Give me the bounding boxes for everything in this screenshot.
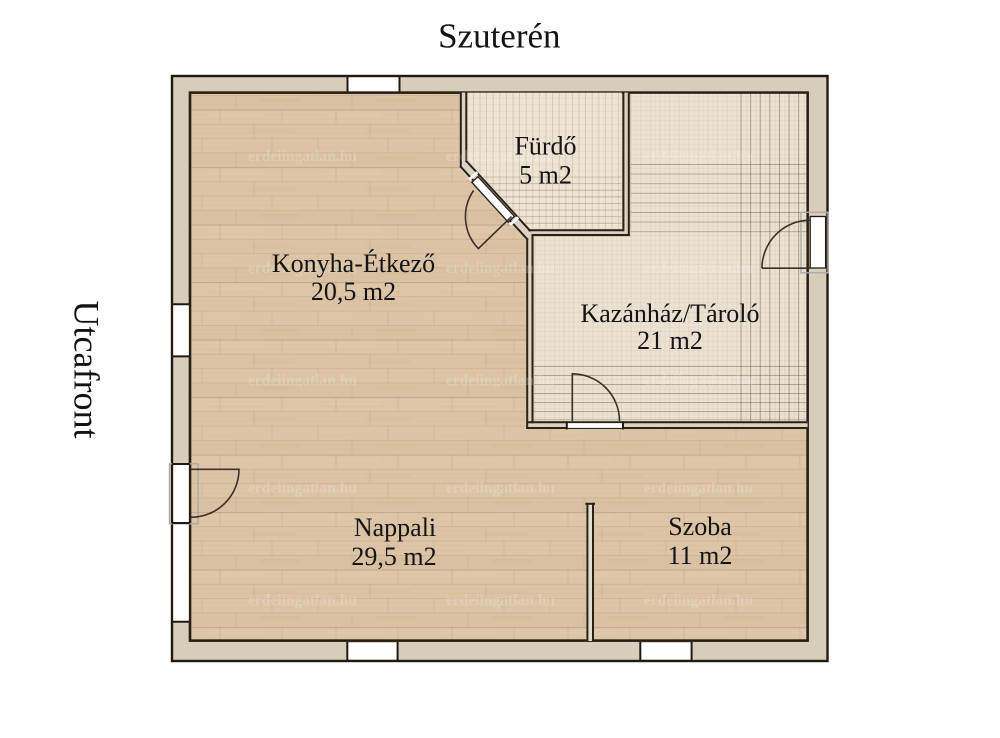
- svg-text:Utcafront: Utcafront: [67, 301, 107, 439]
- svg-text:erdeiingatlan.hu: erdeiingatlan.hu: [842, 592, 951, 609]
- svg-text:21 m2: 21 m2: [637, 326, 703, 355]
- svg-text:erdeiingatlan.hu: erdeiingatlan.hu: [842, 372, 951, 389]
- svg-text:Szoba: Szoba: [668, 512, 732, 541]
- svg-text:erdeiingatlan.hu: erdeiingatlan.hu: [446, 260, 555, 277]
- svg-text:erdeiingatlan.hu: erdeiingatlan.hu: [644, 372, 753, 389]
- svg-text:erdeiingatlan.hu: erdeiingatlan.hu: [842, 260, 951, 277]
- svg-text:Konyha-Étkező: Konyha-Étkező: [272, 249, 435, 278]
- svg-text:erdeiingatlan.hu: erdeiingatlan.hu: [248, 148, 357, 165]
- svg-text:erdeiingatlan.hu: erdeiingatlan.hu: [446, 480, 555, 497]
- svg-text:erdeiingatlan.hu: erdeiingatlan.hu: [842, 148, 951, 165]
- svg-text:Kazánház/Tároló: Kazánház/Tároló: [580, 299, 759, 328]
- svg-text:Nappali: Nappali: [354, 513, 436, 542]
- svg-text:erdeiingatlan.hu: erdeiingatlan.hu: [446, 372, 555, 389]
- svg-text:Szuterén: Szuterén: [438, 17, 560, 56]
- svg-text:erdeiingatlan.hu: erdeiingatlan.hu: [644, 592, 753, 609]
- svg-text:11 m2: 11 m2: [668, 541, 733, 570]
- svg-text:erdeiingatlan.hu: erdeiingatlan.hu: [644, 148, 753, 165]
- svg-text:erdeiingatlan.hu: erdeiingatlan.hu: [446, 592, 555, 609]
- svg-text:erdeiingatlan.hu: erdeiingatlan.hu: [248, 372, 357, 389]
- svg-text:29,5 m2: 29,5 m2: [351, 542, 436, 571]
- svg-text:erdeiingatlan.hu: erdeiingatlan.hu: [644, 480, 753, 497]
- svg-text:20,5 m2: 20,5 m2: [311, 277, 396, 306]
- svg-text:erdeiingatlan.hu: erdeiingatlan.hu: [644, 260, 753, 277]
- svg-text:erdeiingatlan.hu: erdeiingatlan.hu: [842, 480, 951, 497]
- svg-text:erdeiingatlan.hu: erdeiingatlan.hu: [248, 480, 357, 497]
- svg-text:Fürdő: Fürdő: [514, 132, 576, 161]
- svg-text:5 m2: 5 m2: [519, 161, 572, 190]
- svg-text:erdeiingatlan.hu: erdeiingatlan.hu: [248, 592, 357, 609]
